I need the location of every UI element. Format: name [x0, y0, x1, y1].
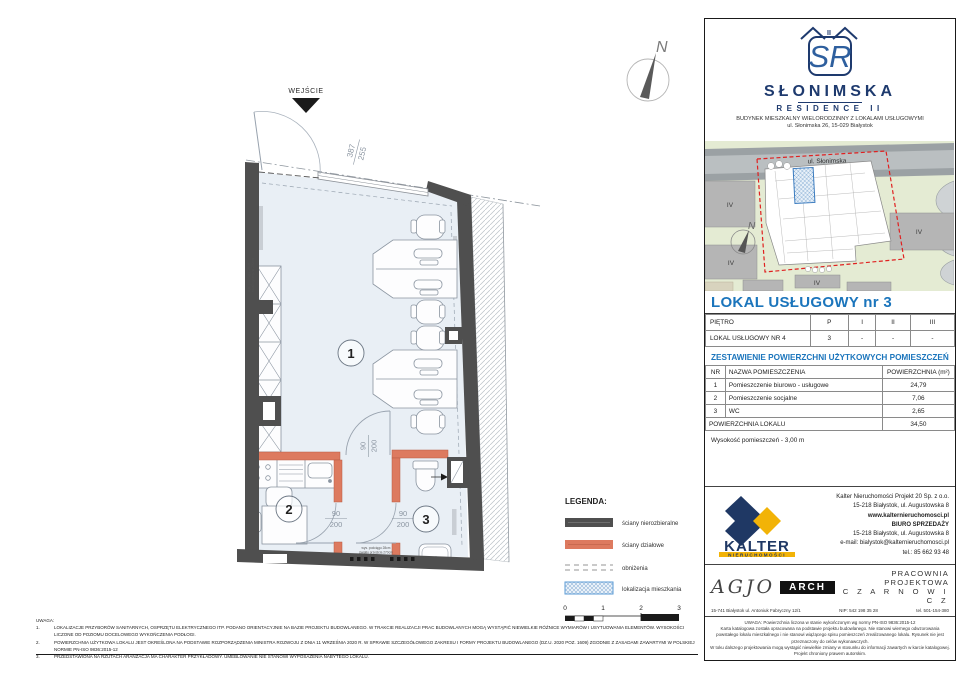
- floor-header-cell: P: [810, 315, 848, 331]
- notes-heading: UWAGA:: [36, 617, 696, 624]
- area-total-label: POWIERZCHNIA LOKALU: [706, 418, 883, 431]
- legend-item-walls: ściany nierozbieralne: [622, 521, 679, 527]
- table-row: 1 Pomieszczenie biurowo - usługowe 24,79: [706, 379, 955, 392]
- legend-title: LEGENDA:: [565, 497, 607, 506]
- note-number: 1.: [36, 624, 46, 638]
- floor-header-cell: III: [910, 315, 954, 331]
- area-header-cell: NR: [706, 366, 726, 379]
- brand-subname: RESIDENCE II: [705, 104, 955, 113]
- brand-block: II SR SŁONIMSKA RESIDENCE II BUDYNEK MIE…: [705, 19, 955, 141]
- entry-dimension: 387 255: [344, 137, 370, 167]
- legend-item-location: lokalizacja mieszkania: [622, 587, 682, 593]
- note-text: LOKALIZACJE PRZYBORÓW SANITARNYCH, OSPRZ…: [54, 624, 696, 638]
- developer-email[interactable]: e-mail: bialystok@kalternieruchomosci.pl: [807, 539, 949, 548]
- svg-text:N: N: [748, 221, 756, 232]
- floor-table: PIĘTRO P I II III LOKAL USŁUGOWY NR 4 3 …: [705, 314, 955, 347]
- room-1-number: 1: [347, 346, 354, 361]
- fineprint-line: W toku dalszego projektowania mogą wystą…: [710, 645, 950, 657]
- svg-text:90: 90: [359, 442, 368, 450]
- svg-text:światło przejścia 270cm: światło przejścia 270cm: [359, 551, 393, 555]
- developer-line: Kalter Nieruchomości Projekt 20 Sp. z o.…: [807, 493, 949, 502]
- brand-underline: [798, 102, 862, 103]
- studio-phone: tel. 501-154-380: [916, 608, 949, 613]
- room-2-number: 2: [285, 502, 292, 517]
- room-3-number: 3: [422, 512, 429, 527]
- brand-name: SŁONIMSKA: [705, 84, 955, 101]
- kalter-logo: KALTER NIERUCHOMOŚCI: [711, 495, 803, 557]
- svg-text:0: 0: [563, 605, 567, 612]
- north-compass-icon: N: [627, 39, 669, 101]
- floor-header-cell: II: [876, 315, 911, 331]
- floor-header-cell: I: [849, 315, 876, 331]
- site-plan-map: ul. Słonimska: [705, 141, 954, 291]
- studio-nip: NIP: 542 198 35 28: [839, 608, 878, 613]
- floor-header-cell: PIĘTRO: [706, 315, 811, 331]
- info-panel: II SR SŁONIMSKA RESIDENCE II BUDYNEK MIE…: [704, 18, 956, 661]
- svg-text:200: 200: [330, 520, 343, 529]
- developer-website[interactable]: www.kalternieruchomosci.pl: [807, 512, 949, 521]
- entrance-door: [254, 111, 320, 178]
- studio-script-logo: AGJO: [711, 576, 775, 598]
- block-label: IV: [727, 202, 734, 209]
- table-total-row: POWIERZCHNIA LOKALU 34,50: [706, 418, 955, 431]
- floor-row-cell: LOKAL USŁUGOWY NR 4: [706, 331, 811, 347]
- developer-line: 15-218 Białystok, ul. Augustowska 8: [807, 530, 949, 539]
- block-label: IV: [916, 229, 923, 236]
- svg-text:200: 200: [370, 440, 379, 453]
- svg-text:światło przejścia 270cm: światło przejścia 270cm: [251, 258, 255, 292]
- brand-monogram: SR: [808, 39, 851, 74]
- floor-row-cell: -: [849, 331, 876, 347]
- studio-name-1: PRACOWNIA PROJEKTOWA: [835, 569, 949, 587]
- developer-phone: tel.: 85 662 93 48: [807, 549, 949, 558]
- studio-block: AGJO ARCH PRACOWNIA PROJEKTOWA C Z A R N…: [705, 564, 955, 616]
- unit-title: LOKAL USŁUGOWY nr 3: [705, 291, 955, 314]
- height-note: Wysokość pomieszczeń - 3,00 m: [705, 431, 955, 450]
- svg-text:90: 90: [332, 509, 340, 518]
- developer-line: 15-218 Białystok, ul. Augustowska 8: [807, 502, 949, 511]
- floorplan-drawing: WEJŚCIE 387 255 90 200 90 200: [0, 0, 700, 678]
- floor-row-cell: -: [876, 331, 911, 347]
- building-address: ul. Słonimska 26, 15-029 Białystok: [705, 123, 955, 129]
- studio-box-logo: ARCH: [780, 581, 835, 594]
- area-table: NR NAZWA POMIESZCZENIA POWIERZCHNIA (m²)…: [705, 365, 955, 431]
- table-row: 2 Pomieszczenie socjalne 7,06: [706, 392, 955, 405]
- legend-item-lowered: obniżenia: [622, 566, 648, 572]
- table-row: 3 WC 2,65: [706, 405, 955, 418]
- kalter-sub: NIERUCHOMOŚCI: [728, 551, 786, 557]
- svg-text:wys. podciągu 28cm: wys. podciągu 28cm: [362, 546, 391, 550]
- legend-item-partitions: ściany działowe: [622, 543, 665, 549]
- developer-block: KALTER NIERUCHOMOŚCI Kalter Nieruchomośc…: [705, 486, 955, 564]
- block-label: IV: [728, 260, 735, 267]
- footer-rule: [36, 654, 698, 655]
- area-total-value: 34,50: [882, 418, 954, 431]
- building-description: BUDYNEK MIESZKALNY WIELORODZINNY Z LOKAL…: [705, 116, 955, 122]
- floor-row-cell: 3: [810, 331, 848, 347]
- note-number: 2.: [36, 639, 46, 653]
- svg-text:255: 255: [356, 145, 368, 161]
- area-header-cell: NAZWA POMIESZCZENIA: [725, 366, 882, 379]
- studio-address: 15-741 Białystok ul. Antoniuk Fabryczny …: [711, 608, 801, 613]
- brand-logo-icon: II SR: [793, 23, 867, 79]
- area-header-cell: POWIERZCHNIA (m²): [882, 366, 954, 379]
- svg-text:1: 1: [601, 605, 605, 612]
- svg-text:90: 90: [399, 509, 407, 518]
- fineprint-block: UWAGA: Powierzchnia liczona w stanie wyk…: [705, 616, 955, 660]
- svg-text:200: 200: [397, 520, 410, 529]
- note-text: POWIERZCHNIA UŻYTKOWA LOKALU JEST OKREŚL…: [54, 639, 696, 653]
- entrance-label: WEJŚCIE: [288, 86, 323, 95]
- floorplan-sheet: WEJŚCIE 387 255 90 200 90 200: [0, 0, 960, 678]
- svg-text:3: 3: [677, 605, 681, 612]
- area-heading: ZESTAWIENIE POWIERZCHNI UŻYTKOWYCH POMIE…: [705, 347, 955, 365]
- svg-text:2: 2: [639, 605, 643, 612]
- fineprint-line: Karta katalogowa została opracowana na p…: [710, 626, 950, 644]
- brand-roman: II: [827, 30, 831, 37]
- studio-name-2: C Z A R N O W I C Z: [835, 587, 949, 605]
- kitchen-counter: [247, 459, 337, 488]
- developer-line: BIURO SPRZEDAŻY: [807, 521, 949, 530]
- north-label: N: [656, 39, 668, 56]
- block-label: IV: [814, 280, 821, 287]
- developer-contact: Kalter Nieruchomości Projekt 20 Sp. z o.…: [807, 493, 949, 558]
- entrance-arrow: WEJŚCIE: [288, 86, 323, 113]
- floor-row-cell: -: [910, 331, 954, 347]
- legend: LEGENDA: ściany nierozbieralne ściany dz…: [565, 497, 682, 594]
